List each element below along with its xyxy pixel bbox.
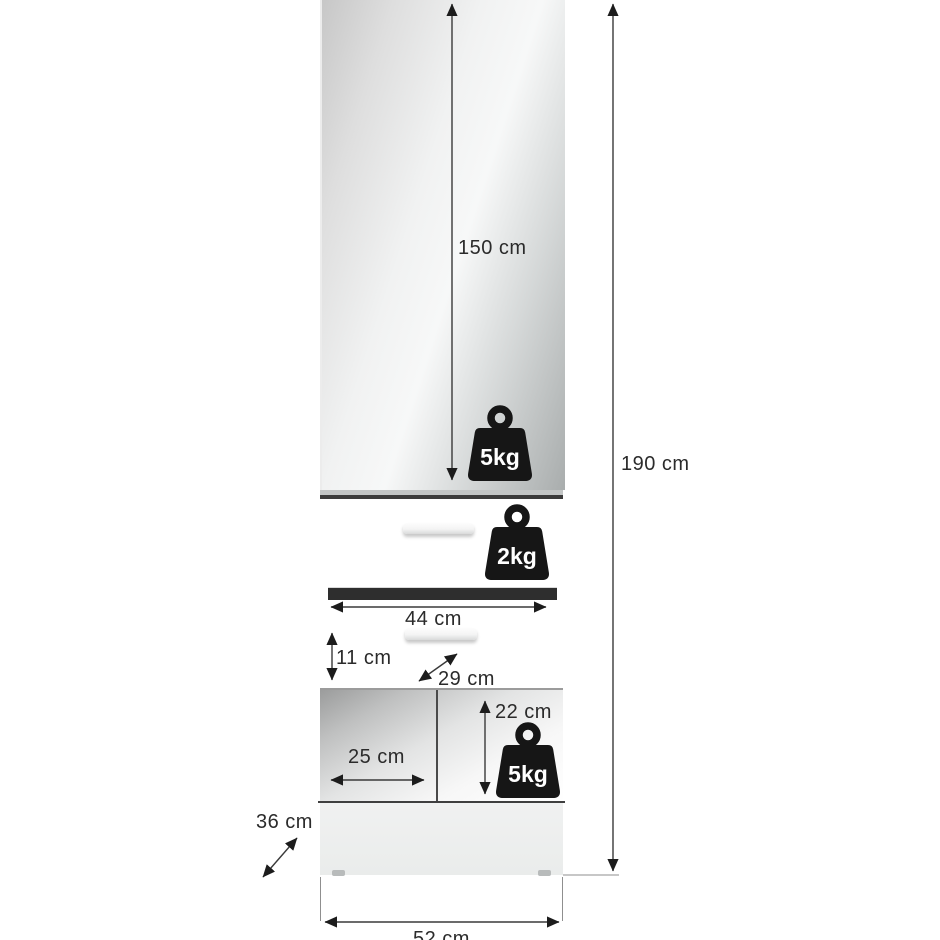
weight-label: 2kg (497, 543, 537, 569)
weight-5kg-icon: 5kg (465, 405, 535, 483)
dim-label-plinth-depth: 36 cm (256, 811, 313, 834)
shelf-divider (436, 690, 438, 803)
weight-label: 5kg (508, 761, 548, 787)
dim-label-drawer-front-height: 11 cm (336, 647, 391, 670)
cabinet-foot-right (538, 870, 551, 876)
cabinet-foot-left (332, 870, 345, 876)
dim-arrow-plinth-depth (263, 838, 297, 877)
weight-2kg-icon: 2kg (482, 504, 552, 582)
dim-label-shelf-width: 25 cm (348, 746, 405, 769)
drawer-handle-top (403, 523, 474, 534)
weight-ring (491, 409, 509, 427)
dim-label-door-height: 150 cm (458, 237, 527, 260)
weight-label: 5kg (480, 444, 520, 470)
dim-label-total-width: 52 cm (413, 928, 470, 940)
weight-ring (508, 508, 526, 526)
dim-label-drawer-depth: 29 cm (438, 668, 495, 691)
dimension-diagram: 150 cm 190 cm 44 cm 11 cm 29 cm 22 cm 25… (0, 0, 940, 940)
weight-5kg-icon: 5kg (493, 722, 563, 800)
recess-strip (328, 587, 557, 601)
plinth-base (320, 803, 563, 875)
dim-label-shelf-height: 22 cm (495, 701, 552, 724)
dim-label-drawer-width: 44 cm (405, 608, 462, 631)
weight-ring (519, 726, 537, 744)
dim-label-total-height: 190 cm (621, 453, 690, 476)
